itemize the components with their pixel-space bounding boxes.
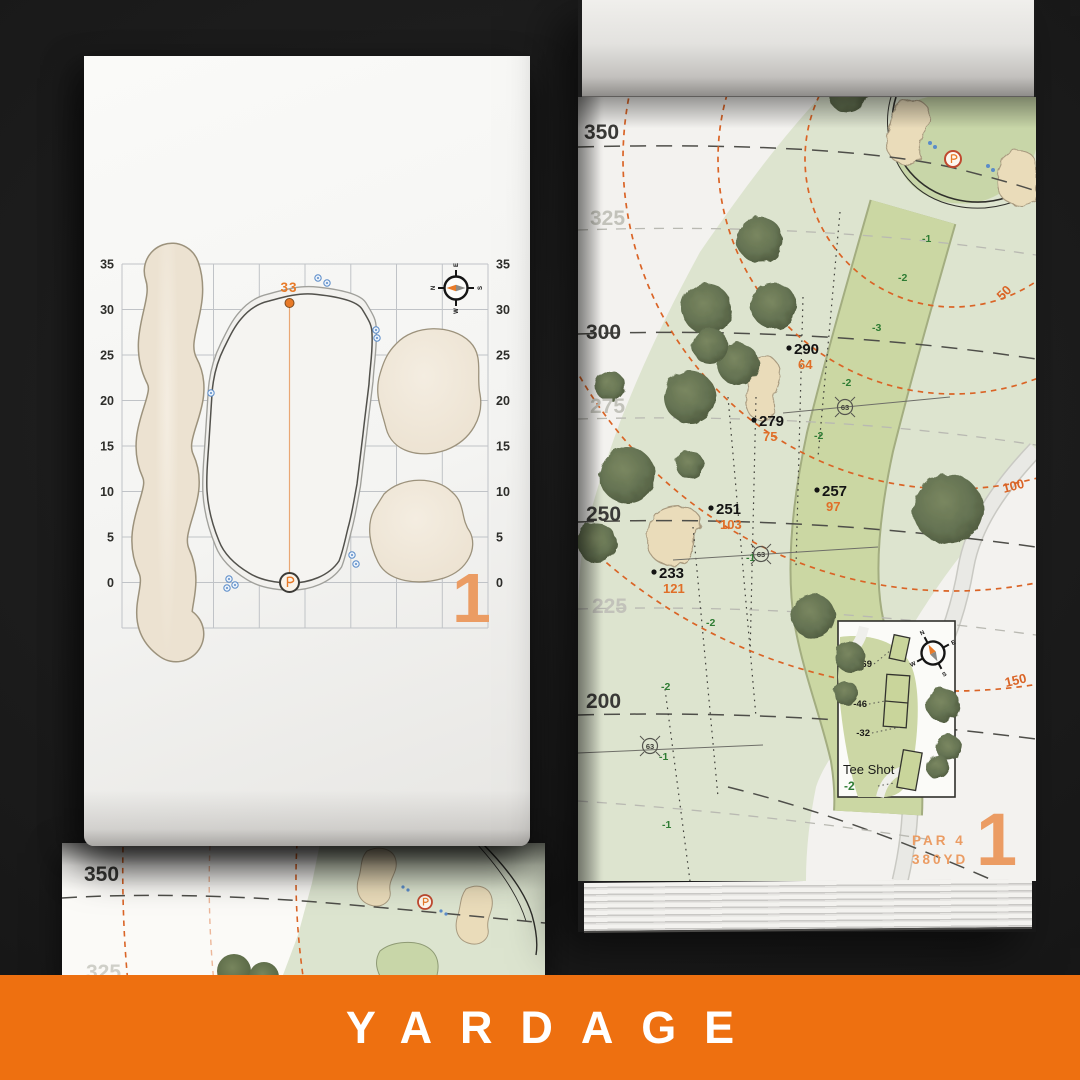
tee-elevation: -2: [844, 779, 855, 793]
axis-right-5: 5: [496, 531, 503, 545]
hole-number: 1: [452, 559, 491, 637]
distance-label-350: 350: [84, 863, 119, 886]
hole-number: 1: [976, 798, 1017, 881]
sprinkler-63: 63: [646, 742, 654, 751]
axis-left-0: 0: [107, 576, 114, 590]
arc-150: 150: [1003, 670, 1028, 689]
banner-title: YARDAGE: [318, 1002, 762, 1054]
axis-right-25: 25: [496, 349, 510, 363]
left-booklet-page: 33: [84, 56, 530, 846]
axis-right-30: 30: [496, 303, 510, 317]
yardage-banner: YARDAGE: [0, 975, 1080, 1080]
pin-marker: [418, 895, 432, 909]
axis-right-10: 10: [496, 485, 510, 499]
to-green-64: 64: [798, 357, 813, 372]
elevation: -1: [922, 233, 931, 245]
arc-line: [209, 845, 214, 983]
sprinkler-63: 63: [757, 550, 765, 559]
elevation: -1: [662, 819, 671, 831]
axis-left-35: 35: [100, 258, 114, 272]
carry-257: 257: [822, 483, 847, 500]
compass-e: E: [454, 263, 460, 267]
pin-dot: [285, 299, 294, 308]
carry-279: 279: [759, 413, 784, 430]
axis-left-20: 20: [100, 394, 114, 408]
elevation: -3: [872, 322, 881, 334]
elevation: -2: [898, 272, 907, 284]
elevation: -2: [661, 681, 670, 693]
carry-251: 251: [716, 501, 741, 518]
to-green-103: 103: [720, 517, 742, 532]
axis-left-25: 25: [100, 349, 114, 363]
compass-icon: N E S W: [431, 263, 484, 314]
axis-left-10: 10: [100, 485, 114, 499]
par-label: PAR 4: [912, 833, 966, 848]
green-detail-map: 33: [84, 56, 530, 846]
tee-offset--32: -32: [856, 728, 870, 739]
elevation: -2: [706, 617, 715, 629]
tee-shot-title: Tee Shot: [843, 762, 895, 777]
compass-n: N: [431, 286, 437, 290]
elevation: -2: [814, 430, 823, 442]
axis-right-20: 20: [496, 394, 510, 408]
to-green-75: 75: [763, 429, 777, 444]
flag-marker: [280, 573, 299, 592]
elevation: -1: [659, 751, 668, 763]
axis-right-35: 35: [496, 258, 510, 272]
under-page-map: 350 325: [62, 843, 545, 983]
left-underpage: 350 325: [62, 843, 545, 983]
to-green-121: 121: [663, 581, 685, 596]
to-green-97: 97: [826, 499, 840, 514]
hole-map: 290 64 279 75 257 97 251 103 233 121: [578, 97, 1036, 881]
axis-right-0: 0: [496, 576, 503, 590]
sprinkler-63: 63: [841, 403, 849, 412]
pin-marker: [945, 151, 961, 167]
hole-map-page: 290 64 279 75 257 97 251 103 233 121: [578, 97, 1036, 881]
flipped-pages-curl: [582, 0, 1034, 97]
spine-shadow: [578, 97, 604, 881]
pin-carry-label: 33: [280, 280, 297, 295]
tee-offset--46: -46: [853, 699, 867, 710]
yardage-label: 380YD: [912, 852, 968, 867]
arc-line: [123, 847, 128, 983]
hole-header: PAR 4 380YD 1: [912, 798, 1017, 881]
yardage-book-poster: 350 325: [0, 0, 1080, 1080]
carry-290: 290: [794, 341, 819, 358]
page-stack-edges: [584, 879, 1032, 933]
axis-left-5: 5: [107, 531, 114, 545]
right-booklet: 290 64 279 75 257 97 251 103 233 121: [578, 0, 1036, 932]
axis-left-15: 15: [100, 440, 114, 454]
carry-233: 233: [659, 565, 684, 582]
axis-right-15: 15: [496, 440, 510, 454]
elevation: -2: [842, 377, 851, 389]
compass-w: W: [454, 308, 460, 314]
compass-s: S: [478, 286, 484, 290]
axis-left-30: 30: [100, 303, 114, 317]
